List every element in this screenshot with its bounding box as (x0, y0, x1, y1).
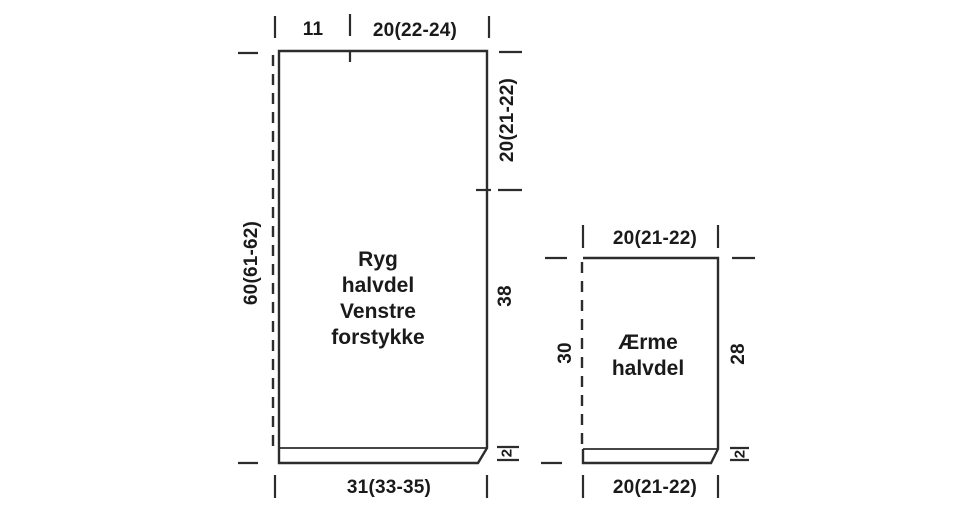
body-dim-right-mid: 38 (495, 285, 517, 307)
sleeve-piece-label-line: halvdel (612, 356, 684, 382)
body-piece-label-line: forstykke (331, 325, 424, 351)
body-piece-label-line: Venstre (331, 299, 424, 325)
body-piece-label-line: halvdel (331, 273, 424, 299)
sleeve-dim-bottom: 20(21-22) (613, 477, 697, 499)
body-piece-label: Ryg halvdel Venstre forstykke (331, 247, 424, 351)
sleeve-dim-left: 30 (555, 342, 577, 364)
sleeve-piece-label: Ærme halvdel (612, 330, 684, 382)
body-piece-label-line: Ryg (331, 247, 424, 273)
body-dim-left: 60(61-62) (241, 221, 263, 305)
body-dim-top-left: 11 (303, 19, 324, 41)
body-dim-right-top: 20(21-22) (497, 78, 519, 162)
body-dim-bottom: 31(33-35) (347, 477, 431, 499)
schematic-lines (0, 0, 960, 532)
body-dim-right-hem: 2 (499, 449, 516, 458)
sleeve-dim-right: 28 (728, 343, 750, 365)
sleeve-piece-label-line: Ærme (612, 330, 684, 356)
sleeve-dim-right-hem: 2 (732, 450, 749, 459)
sleeve-dim-top: 20(21-22) (613, 228, 697, 250)
body-dim-top-right: 20(22-24) (373, 20, 457, 42)
pattern-schematic: 11 20(22-24) 20(21-22) 38 2 60(61-62) 31… (0, 0, 960, 532)
